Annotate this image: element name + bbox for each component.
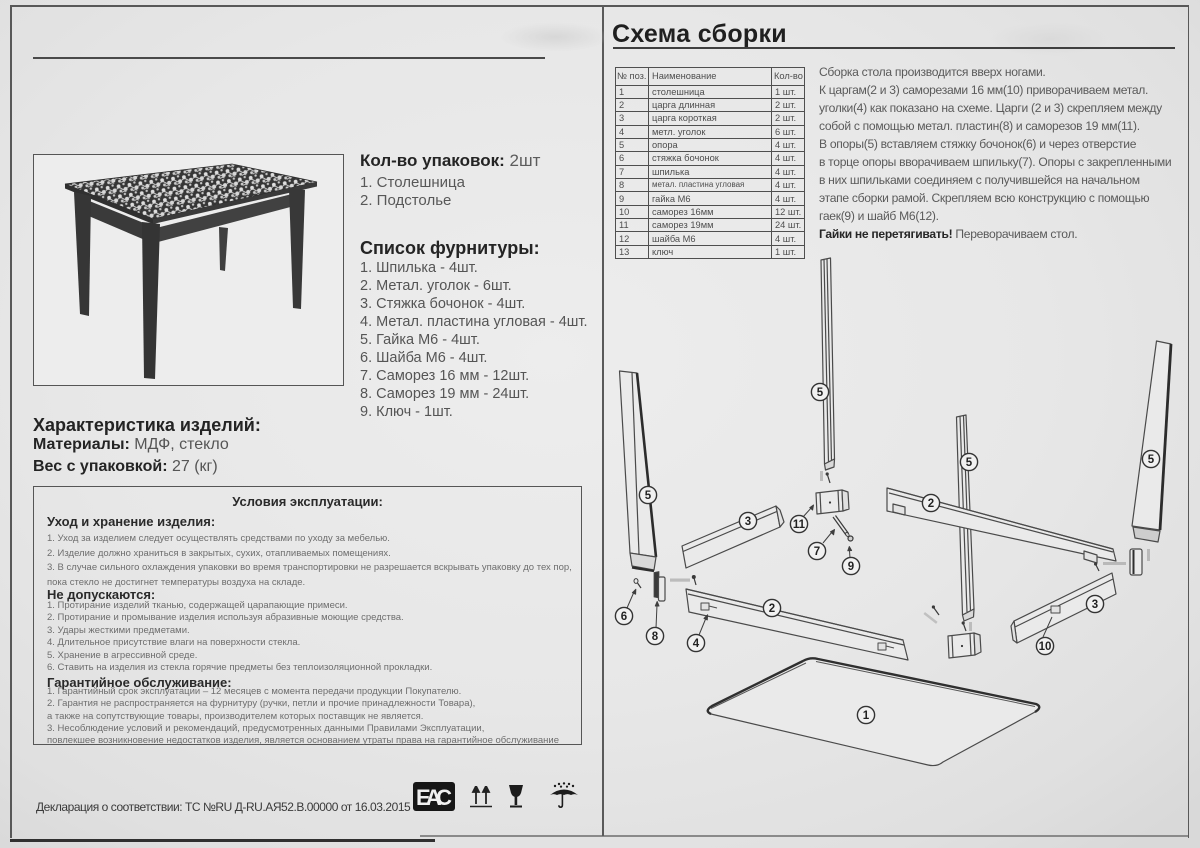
svg-text:5: 5 — [645, 490, 652, 502]
svg-text:8: 8 — [652, 631, 659, 643]
svg-text:3: 3 — [745, 516, 751, 528]
svg-text:3: 3 — [1092, 599, 1098, 611]
svg-text:9: 9 — [848, 561, 854, 573]
svg-text:5: 5 — [966, 457, 973, 469]
svg-text:11: 11 — [793, 519, 806, 531]
svg-text:6: 6 — [621, 611, 627, 623]
svg-text:10: 10 — [1039, 641, 1052, 653]
svg-text:ЕАС: ЕАС — [416, 785, 452, 810]
svg-text:5: 5 — [817, 387, 824, 399]
svg-text:7: 7 — [814, 546, 820, 558]
svg-text:1: 1 — [863, 710, 870, 722]
svg-text:5: 5 — [1148, 454, 1155, 466]
svg-text:2: 2 — [769, 603, 775, 615]
svg-text:4: 4 — [693, 638, 700, 650]
svg-text:2: 2 — [928, 498, 934, 510]
